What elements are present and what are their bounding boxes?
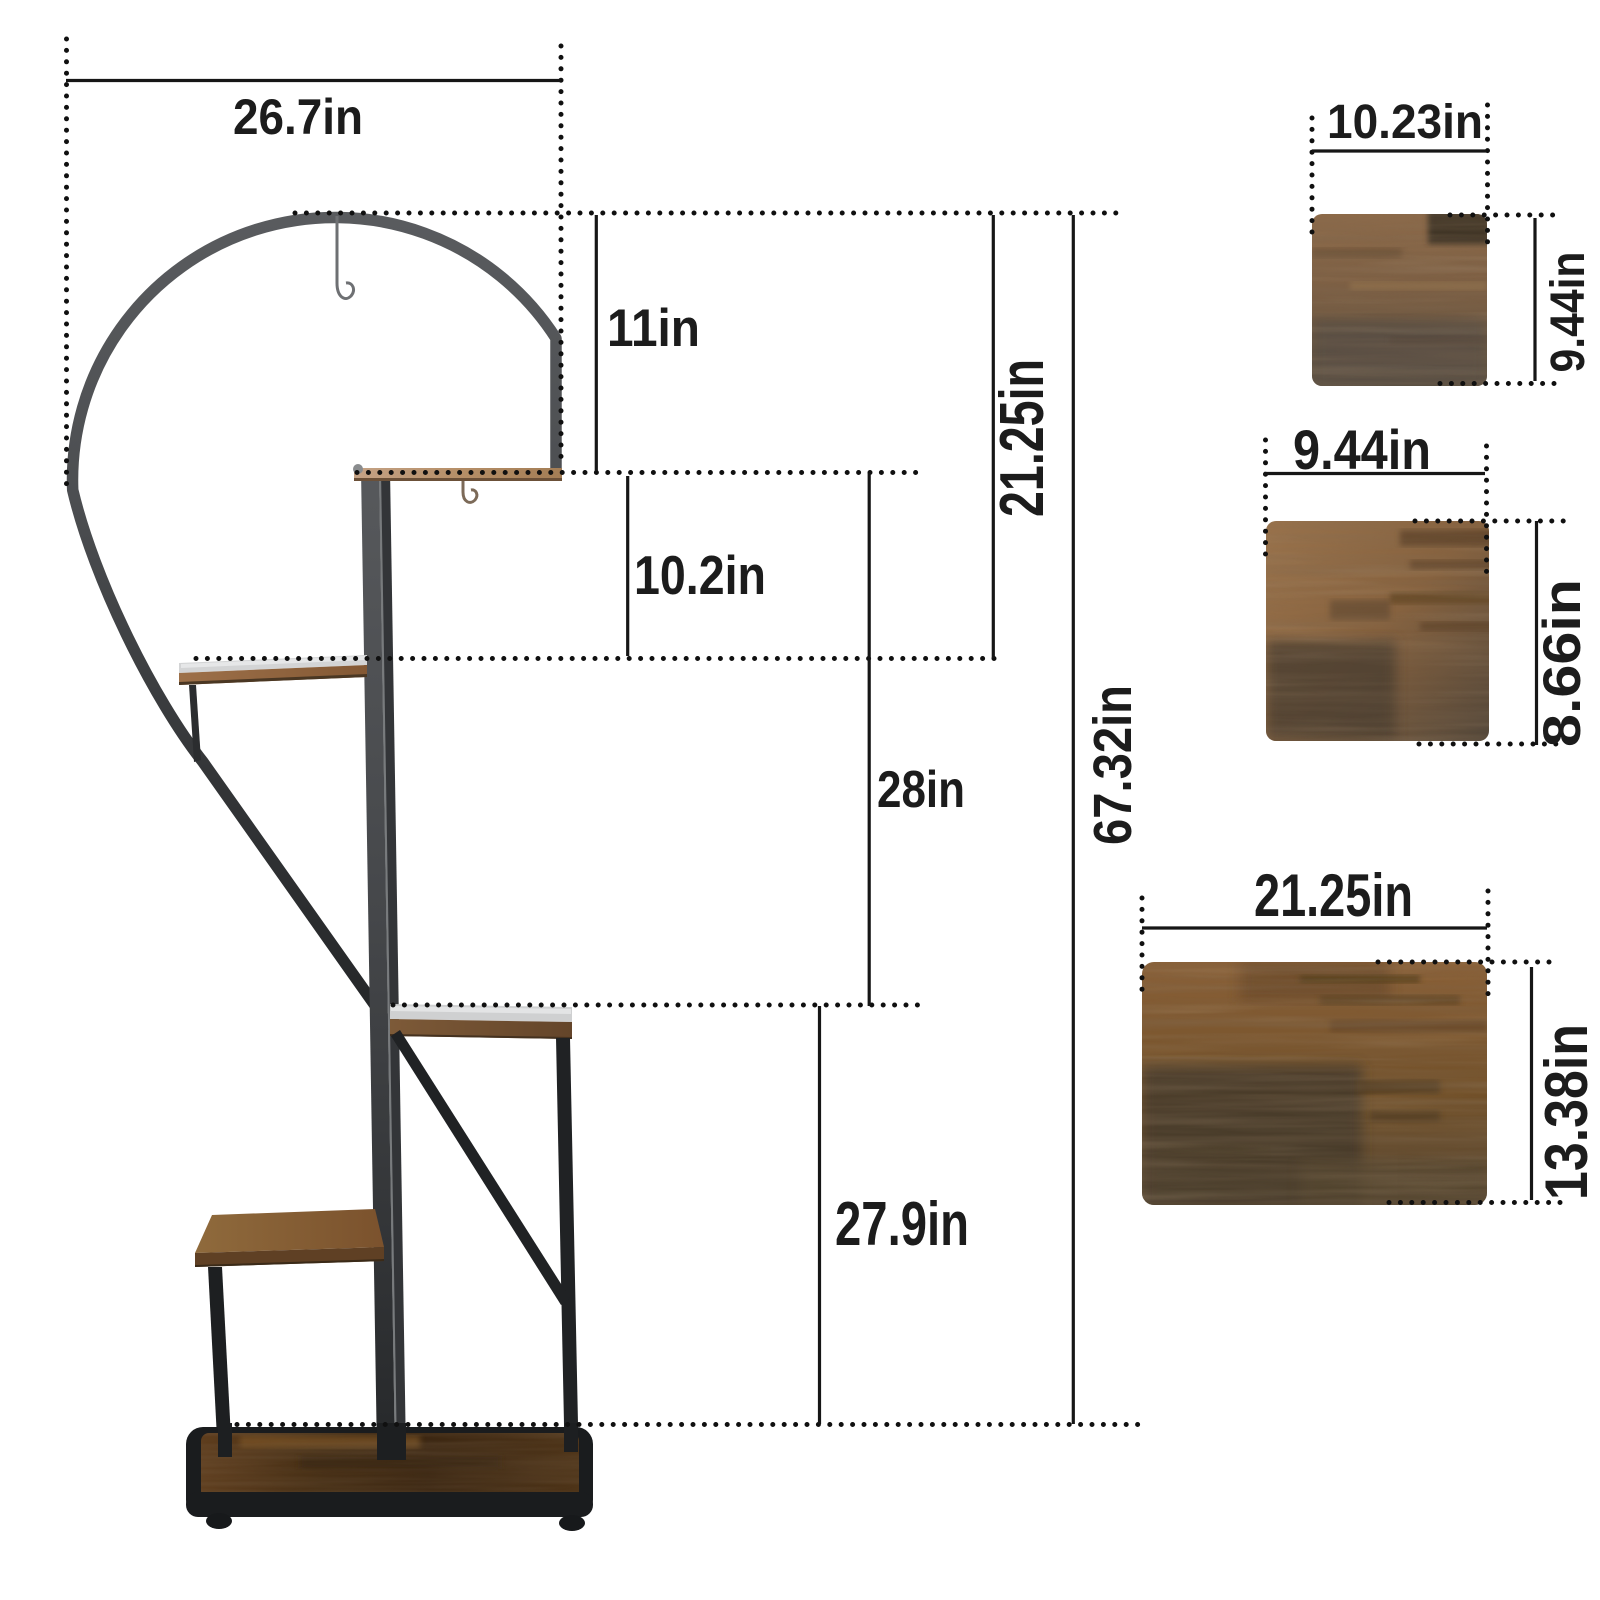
svg-text:9.44in: 9.44in [1542, 252, 1595, 373]
svg-text:9.44in: 9.44in [1293, 418, 1431, 481]
svg-text:10.2in: 10.2in [634, 544, 766, 606]
svg-text:27.9in: 27.9in [835, 1190, 969, 1259]
svg-text:21.25in: 21.25in [988, 359, 1057, 517]
svg-text:26.7in: 26.7in [233, 89, 363, 145]
svg-text:21.25in: 21.25in [1254, 862, 1413, 929]
svg-text:11in: 11in [607, 299, 700, 358]
svg-text:8.66in: 8.66in [1533, 579, 1592, 747]
svg-text:10.23in: 10.23in [1327, 96, 1483, 149]
svg-text:28in: 28in [877, 761, 965, 819]
svg-text:13.38in: 13.38in [1533, 1024, 1600, 1200]
svg-text:67.32in: 67.32in [1083, 685, 1143, 845]
